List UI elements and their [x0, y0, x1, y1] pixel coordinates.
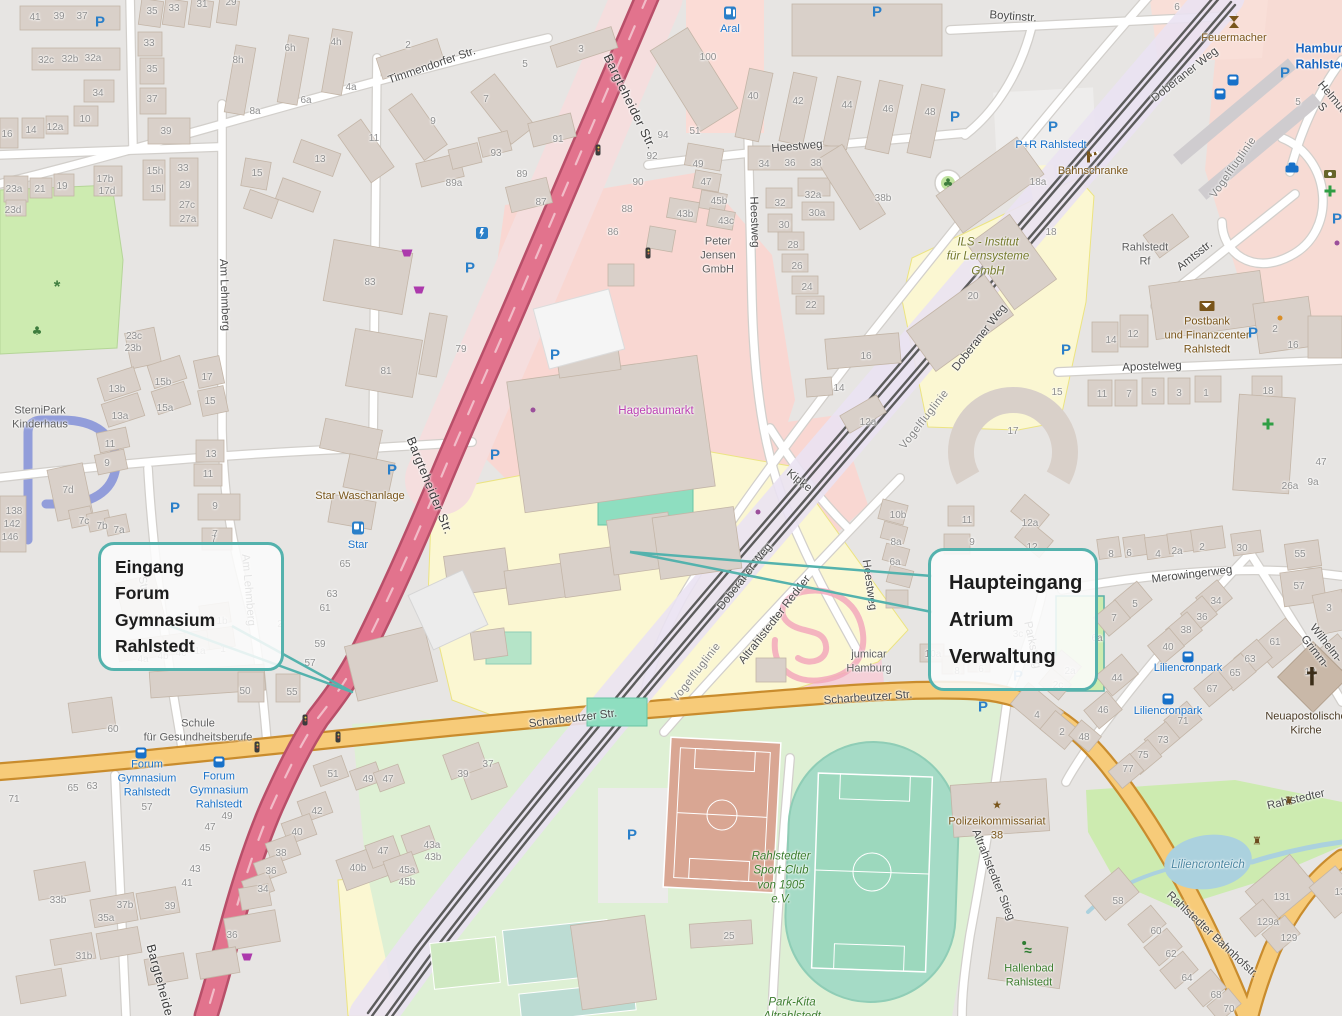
callout-haupteingang-atrium: Haupteingang Atrium Verwaltung [928, 548, 1098, 691]
callout-left-line1: Eingang [115, 554, 267, 580]
callout-eingang-forum-gymnasium: Eingang Forum Gymnasium Rahlstedt [98, 542, 284, 671]
callout-left-line2: Forum Gymnasium [115, 580, 267, 633]
callout-left-line3: Rahlstedt [115, 633, 267, 659]
callout-right-line1: Haupteingang [949, 572, 1077, 595]
map-viewport[interactable]: Timmendorfer Str.Bargteheider Str.Bargte… [0, 0, 1342, 1016]
callout-right-line3: Verwaltung [949, 646, 1077, 669]
map-canvas[interactable] [0, 0, 1342, 1016]
callout-right-line2: Atrium [949, 609, 1077, 632]
